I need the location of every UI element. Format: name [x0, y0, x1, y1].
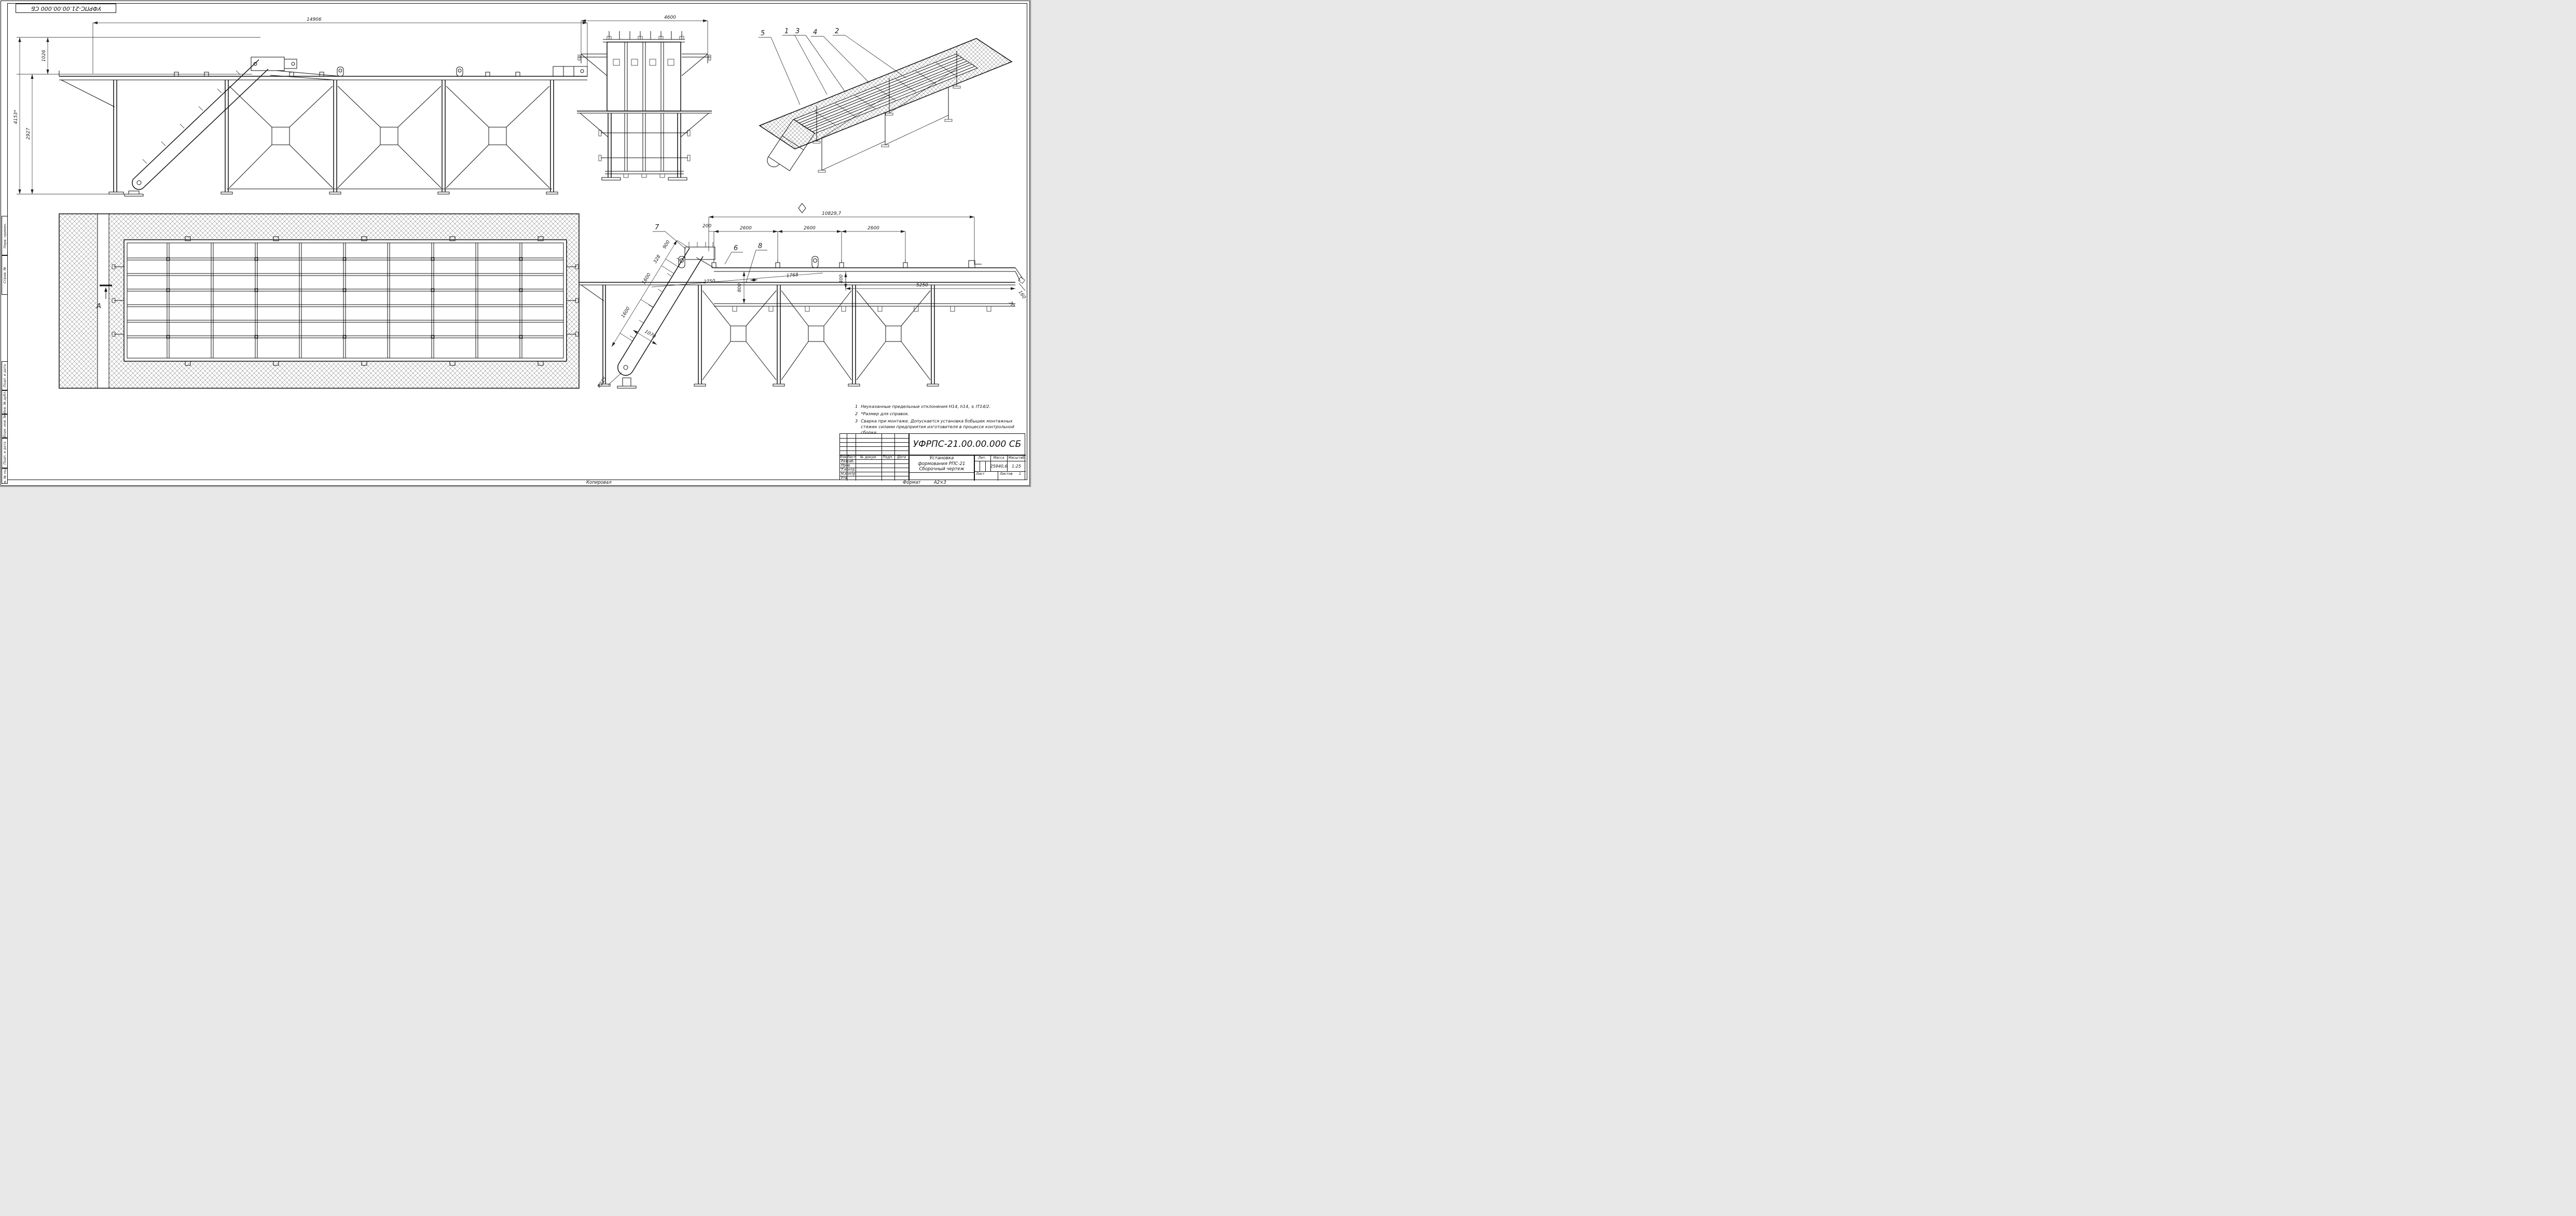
note-2-num: 2	[855, 411, 858, 417]
end-structure	[577, 31, 712, 180]
end-studs	[607, 31, 684, 39]
tb-sheets-label: Листов	[998, 471, 1015, 476]
tb-lit-label: Лит.	[974, 455, 990, 461]
tb-col-podp: Подп.	[881, 455, 894, 459]
sheet-footer: Копировал Формат А2×3	[0, 480, 1030, 486]
tb-row-razrab: Разраб.	[840, 459, 856, 463]
dim-2600-2: 2600	[804, 226, 816, 231]
callout-1: 1	[784, 28, 789, 35]
margin-box-podp-data-1: Подп. и дата	[2, 361, 8, 390]
margin-box-inv-dubl: Инв. № дубл.	[2, 390, 8, 414]
margin-box-perv-primen: Перв. примен.	[2, 216, 8, 255]
dim-200: 200	[702, 224, 711, 229]
margin-box-sprav-no: Справ. №	[2, 255, 8, 295]
dim-14906: 14906	[307, 17, 322, 22]
front-dimensions: 14906 4153* 2927 1026	[13, 17, 587, 194]
iso-structure	[760, 38, 1012, 172]
note-2: *Размер для справок.	[861, 411, 909, 417]
side-deck-fittings	[679, 256, 982, 268]
view-front-elevation: 14906 4153* 2927 1026	[8, 12, 589, 197]
corner-stamp: УФРПС-21.00.00.000 СБ	[16, 4, 116, 13]
view-end: 4600	[577, 12, 712, 189]
tb-col-doc: № докум.	[856, 455, 881, 459]
side-legs	[694, 285, 939, 386]
callout-4: 4	[813, 29, 817, 36]
footer-format-label: Формат	[903, 480, 921, 485]
tb-name-line2: формования РПС-21	[910, 461, 974, 467]
callout-7: 7	[655, 224, 659, 231]
tb-name-line3: Сборочный чертеж	[910, 467, 974, 472]
title-block: Изм. Лист № докум. Подп. Дата Разраб. Пр…	[839, 433, 1025, 480]
tb-col-list: Лист	[847, 455, 856, 459]
dim-10829: 10829,7	[822, 211, 841, 216]
note-1-num: 1	[855, 404, 858, 409]
front-structure	[59, 57, 587, 196]
tb-row-nkontr: Н.контр.	[840, 472, 856, 476]
side-elevator-boom	[617, 242, 715, 388]
callout-5: 5	[761, 30, 765, 37]
tb-row-prov: Пров.	[840, 463, 856, 468]
datum-diamond-icon	[798, 203, 806, 213]
callout-6: 6	[734, 244, 738, 252]
front-deck-fittings	[174, 66, 587, 76]
drawing-sheet: УФРПС-21.00.00.000 СБ Перв. примен. Спра…	[0, 0, 1030, 486]
dim-1070: 1070	[643, 329, 656, 340]
margin-box-podp-data-2: Подп. и дата	[2, 438, 8, 468]
dim-1768: 1768	[786, 272, 798, 279]
callout-3: 3	[795, 28, 800, 35]
dim-4153: 4153*	[13, 110, 19, 124]
lifting-lug-icon	[337, 67, 343, 76]
iso-callouts: 5 1 3 4 2	[759, 28, 906, 105]
dim-R215: R215	[597, 376, 608, 389]
front-elevator-boom	[125, 57, 340, 196]
side-callouts: 7 6 8	[653, 224, 767, 282]
dim-400: 400	[839, 275, 844, 283]
end-side-brackets	[578, 54, 711, 76]
side-dimensions-misc: 5250 400 800 2750 1768 900 328 1600 1600…	[597, 239, 1026, 389]
front-legs	[221, 80, 558, 194]
dim-5250: 5250	[916, 283, 928, 288]
margin-box-vzam-inv: Взам. инв. №	[2, 414, 8, 438]
plan-bolt-marks	[167, 257, 522, 338]
corner-stamp-text: УФРПС-21.00.00.000 СБ	[31, 5, 101, 12]
tb-scale-value: 1:25	[1007, 461, 1026, 471]
dim-900: 900	[662, 239, 671, 250]
tb-row-tkontr: Т.контр.	[840, 468, 856, 472]
plan-structure	[59, 214, 579, 388]
note-1: Неуказанные предельные отклонения Н14, h…	[861, 404, 990, 409]
tb-name: Установка формования РПС-21 Сборочный че…	[910, 456, 974, 480]
tb-sheets-value: 1	[1015, 471, 1025, 476]
tb-doc-number: УФРПС-21.00.00.000 СБ	[910, 434, 1025, 455]
footer-copied: Копировал	[586, 480, 612, 485]
side-structure	[579, 242, 1025, 388]
dim-4600: 4600	[664, 15, 676, 20]
tb-sheet-label: Лист	[974, 471, 998, 476]
section-label-A: А	[96, 303, 101, 310]
dim-800: 800	[737, 283, 742, 292]
view-side-enlarged: 10829,7 200 2600 2600 2600	[579, 201, 1025, 397]
callout-8: 8	[758, 242, 762, 250]
lifting-lug-icon	[457, 67, 463, 76]
front-x-braces	[229, 86, 549, 188]
dim-2600-3: 2600	[867, 226, 879, 231]
dim-1026: 1026	[42, 50, 47, 62]
tb-row-utv: Утв.	[840, 476, 856, 480]
view-plan: А	[58, 210, 581, 392]
tb-col-data: Дата	[894, 455, 908, 459]
dim-2600-1: 2600	[740, 226, 752, 231]
view-isometric: 5 1 3 4 2	[739, 17, 1030, 199]
tb-scale-label: Масштаб	[1007, 455, 1026, 461]
dim-1600b: 1600	[621, 306, 631, 319]
dim-160: 160	[1017, 290, 1026, 300]
footer-format-value: А2×3	[934, 480, 946, 485]
dim-328: 328	[653, 254, 662, 264]
dim-30: 30	[1008, 300, 1015, 308]
side-x-braces	[702, 291, 930, 380]
technical-notes: 1Неуказанные предельные отклонения Н14, …	[855, 404, 1022, 437]
tb-name-line1: Установка	[910, 456, 974, 461]
side-dimensions-top: 10829,7 200 2600 2600 2600	[702, 203, 974, 265]
tb-mass-label: Масса	[990, 455, 1007, 461]
dim-2927: 2927	[26, 128, 31, 140]
end-dimensions: 4600	[581, 15, 708, 55]
callout-2: 2	[835, 28, 839, 35]
plan-edge-fittings	[185, 237, 543, 365]
dim-2750: 2750	[703, 279, 715, 285]
tb-mass-value: 25940,6	[990, 461, 1007, 471]
tb-col-izm: Изм.	[840, 455, 847, 459]
